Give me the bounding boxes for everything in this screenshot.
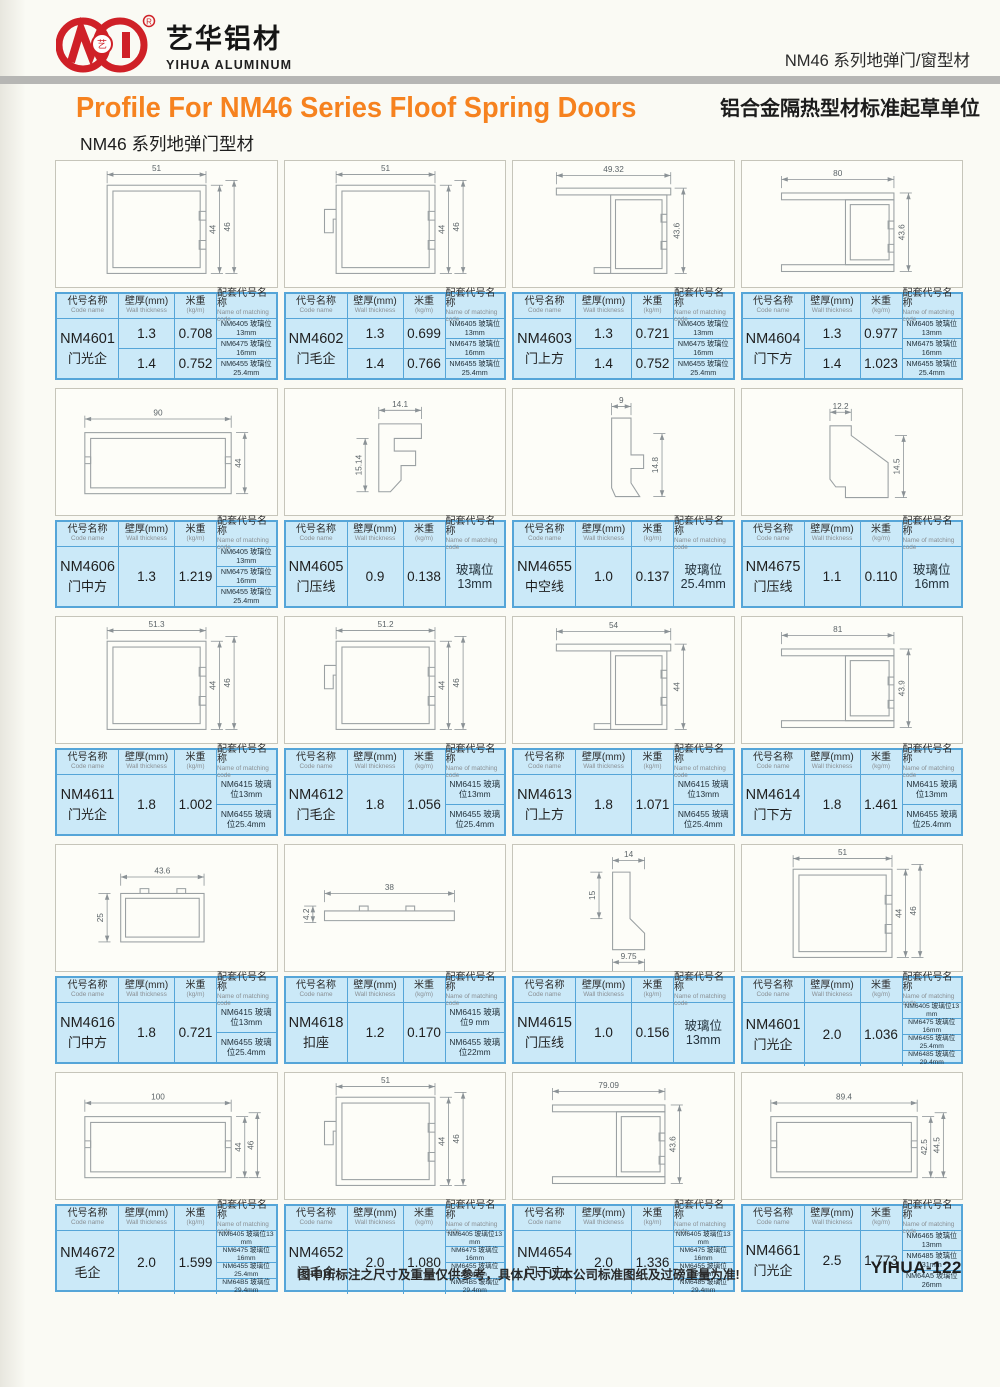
header-weight-en: (kg/m) <box>415 992 433 999</box>
header-matching-code: 配套代号名称 Name of matching code <box>674 978 733 1003</box>
matching-cell: 玻璃位13mm <box>674 1003 733 1062</box>
header-weight-en: (kg/m) <box>643 992 661 999</box>
svg-text:15: 15 <box>588 890 597 900</box>
code-cell: NM4601 门光企 <box>57 319 119 378</box>
profile-cross-section-icon: 51.34446 <box>56 617 277 743</box>
thickness-cell: 1.0 <box>576 1003 632 1062</box>
header-matching-code-cn: 配套代号名称 <box>217 517 276 538</box>
header-matching-code: 配套代号名称 Name of matching code <box>446 1206 505 1231</box>
svg-text:46: 46 <box>223 678 232 688</box>
svg-text:44: 44 <box>894 908 903 918</box>
header-weight: 米重 (kg/m) <box>175 750 217 775</box>
svg-text:46: 46 <box>452 1134 461 1144</box>
profile-cell: 514446 代号名称 Code name 壁厚(mm) Wall thickn… <box>741 844 964 1064</box>
profile-spec-table: 代号名称 Code name 壁厚(mm) Wall thickness 米重 … <box>741 748 964 836</box>
header-weight: 米重 (kg/m) <box>175 522 217 547</box>
code-cell: NM4603 门上方 <box>514 319 576 378</box>
header-matching-code: 配套代号名称 Name of matching code <box>217 1206 276 1231</box>
profile-drawing: 51.24446 <box>284 616 507 744</box>
weight-cell: 0.156 <box>632 1003 674 1062</box>
svg-text:15.14: 15.14 <box>354 454 363 475</box>
thickness-cell: 1.0 <box>576 547 632 606</box>
header-code-name: 代号名称 Code name <box>514 522 576 547</box>
wall-thickness-value: 1.2 <box>348 1003 403 1062</box>
profile-cell: 8043.6 代号名称 Code name 壁厚(mm) Wall thickn… <box>741 160 964 380</box>
header-wall-thickness: 壁厚(mm) Wall thickness <box>805 294 861 319</box>
header-weight-en: (kg/m) <box>872 764 890 771</box>
profile-cell: 914.8 代号名称 Code name 壁厚(mm) Wall thickne… <box>512 388 735 608</box>
header-matching-code: 配套代号名称 Name of matching code <box>903 294 962 319</box>
header-wall-thickness-en: Wall thickness <box>812 992 853 999</box>
matching-cell: NM6415 玻璃位9 mmNM6455 玻璃位22mm <box>446 1003 505 1062</box>
profile-drawing: 79.0943.6 <box>512 1072 735 1200</box>
code-cell: NM4655 中空线 <box>514 547 576 606</box>
matching-cell: NM6405 玻璃位13mmNM6475 玻璃位16mmNM6455 玻璃位25… <box>903 319 962 378</box>
matching-code-entry: NM6455 玻璃位25.4mm <box>903 358 962 378</box>
profile-drawing: 914.8 <box>512 388 735 516</box>
svg-text:艺: 艺 <box>97 39 107 51</box>
header-code-name-en: Code name <box>528 992 561 999</box>
profile-spec-table: 代号名称 Code name 壁厚(mm) Wall thickness 米重 … <box>741 976 964 1064</box>
code-cell: NM4614 门下方 <box>743 775 805 834</box>
profile-spec-table: 代号名称 Code name 壁厚(mm) Wall thickness 米重 … <box>741 1204 964 1292</box>
matching-code-entry: NM6415 玻璃位13mm <box>217 775 276 804</box>
svg-text:51: 51 <box>380 1076 390 1085</box>
profile-code: NM4611 <box>61 787 115 803</box>
code-cell: NM4675 门压线 <box>743 547 805 606</box>
footer-disclaimer: 图中所标注之尺寸及重量仅供参考，具体尺寸以本公司标准图纸及过磅重量为准! <box>298 1264 740 1283</box>
profile-code: NM4603 <box>517 331 572 347</box>
profile-code: NM4605 <box>289 559 344 575</box>
profile-spec-table: 代号名称 Code name 壁厚(mm) Wall thickness 米重 … <box>55 1204 278 1292</box>
header-code-name-en: Code name <box>299 1220 332 1227</box>
profile-code: NM4601 <box>746 1017 801 1033</box>
header-code-name-en: Code name <box>299 992 332 999</box>
header-code-name-en: Code name <box>756 308 789 315</box>
profile-name: 门上方 <box>525 804 564 823</box>
header-code-name: 代号名称 Code name <box>743 978 805 1003</box>
header-wall-thickness-en: Wall thickness <box>126 308 167 315</box>
svg-text:R: R <box>146 18 152 27</box>
weight-cell: 1.002 <box>175 775 217 834</box>
profile-name: 门中方 <box>68 1032 107 1051</box>
matching-code-entry: NM6475 玻璃位16mm <box>217 566 276 586</box>
header-wall-thickness-en: Wall thickness <box>355 1220 396 1227</box>
profile-code: NM4614 <box>746 787 801 803</box>
header-code-name-en: Code name <box>71 1220 104 1227</box>
header-weight-en: (kg/m) <box>415 308 433 315</box>
matching-code-entry: 玻璃位13mm <box>446 547 505 606</box>
matching-code-entry: NM6405 玻璃位13 mm <box>903 1003 962 1018</box>
matching-code-entry: NM6475 玻璃位16mm <box>217 1246 276 1262</box>
header-matching-code-cn: 配套代号名称 <box>217 1201 276 1222</box>
weight-value: 0.766 <box>404 348 445 378</box>
header-wall-thickness: 壁厚(mm) Wall thickness <box>119 522 175 547</box>
header-matching-code-cn: 配套代号名称 <box>217 973 276 994</box>
profile-cross-section-icon: 384.2 <box>285 845 506 971</box>
profile-code: NM4652 <box>289 1245 344 1261</box>
svg-text:90: 90 <box>153 409 163 418</box>
matching-code-entry: NM6455 玻璃位25.4mm <box>446 358 505 378</box>
matching-code-entry: 玻璃位16mm <box>903 547 962 606</box>
header-code-name-en: Code name <box>71 308 104 315</box>
wall-thickness-value: 0.9 <box>348 547 403 606</box>
matching-code-entry: NM6475 玻璃位16mm <box>446 1246 505 1262</box>
header-code-name: 代号名称 Code name <box>743 522 805 547</box>
profile-cell: 14159.75 代号名称 Code name 壁厚(mm) Wall thic… <box>512 844 735 1064</box>
profile-name: 扣座 <box>303 1032 329 1051</box>
thickness-cell: 2.0 <box>119 1231 175 1294</box>
weight-cell: 1.080 <box>404 1231 446 1294</box>
svg-text:43.6: 43.6 <box>669 1136 678 1152</box>
header-wall-thickness: 壁厚(mm) Wall thickness <box>348 1206 404 1231</box>
header-wall-thickness-en: Wall thickness <box>355 764 396 771</box>
profile-drawing: 384.2 <box>284 844 507 972</box>
weight-cell: 0.721 <box>175 1003 217 1062</box>
matching-code-entry: 玻璃位13mm <box>674 1003 733 1062</box>
matching-code-entry: NM6455 玻璃位25.4mm <box>217 804 276 834</box>
weight-value: 0.752 <box>175 348 216 378</box>
header-code-name: 代号名称 Code name <box>743 294 805 319</box>
header-matching-code-cn: 配套代号名称 <box>903 517 962 538</box>
header-wall-thickness-en: Wall thickness <box>355 536 396 543</box>
weight-value: 1.599 <box>175 1231 216 1294</box>
weight-value: 0.170 <box>404 1003 445 1062</box>
profile-spec-table: 代号名称 Code name 壁厚(mm) Wall thickness 米重 … <box>284 292 507 380</box>
profile-drawing: 49.3243.6 <box>512 160 735 288</box>
header-code-name-en: Code name <box>71 536 104 543</box>
profile-name: 门光企 <box>68 804 107 823</box>
profile-cell: 12.214.5 代号名称 Code name 壁厚(mm) Wall thic… <box>741 388 964 608</box>
profile-spec-table: 代号名称 Code name 壁厚(mm) Wall thickness 米重 … <box>741 292 964 380</box>
header-matching-code: 配套代号名称 Name of matching code <box>674 294 733 319</box>
profile-cross-section-icon: 43.625 <box>56 845 277 971</box>
matching-code-entry: NM6405 玻璃位13 mm <box>217 1231 276 1246</box>
profile-drawing: 8143.9 <box>741 616 964 744</box>
svg-text:44: 44 <box>209 680 218 690</box>
header-weight: 米重 (kg/m) <box>175 978 217 1003</box>
header-code-name: 代号名称 Code name <box>514 294 576 319</box>
header-matching-code: 配套代号名称 Name of matching code <box>674 1206 733 1231</box>
header-wall-thickness: 壁厚(mm) Wall thickness <box>805 522 861 547</box>
profile-name: 门下方 <box>753 348 792 367</box>
matching-code-entry: NM6455 玻璃位25.4mm <box>217 1032 276 1062</box>
matching-code-entry: NM6405 玻璃位13mm <box>674 319 733 338</box>
profile-code: NM4616 <box>60 1015 115 1031</box>
svg-text:43.6: 43.6 <box>154 867 170 876</box>
header-matching-code-cn: 配套代号名称 <box>674 973 733 994</box>
matching-code-entry: NM6455 玻璃位25.4mm <box>903 1034 962 1050</box>
header-weight: 米重 (kg/m) <box>632 750 674 775</box>
header-matching-code: 配套代号名称 Name of matching code <box>446 750 505 775</box>
header-matching-code: 配套代号名称 Name of matching code <box>217 522 276 547</box>
matching-code-entry: NM6405 玻璃位13mm <box>217 547 276 566</box>
profile-cross-section-icon: 514446 <box>285 161 506 287</box>
svg-text:100: 100 <box>151 1093 165 1102</box>
code-cell: NM4606 门中方 <box>57 547 119 606</box>
thickness-cell: 1.1 <box>805 547 861 606</box>
profile-code: NM4612 <box>289 787 344 803</box>
header-weight: 米重 (kg/m) <box>632 978 674 1003</box>
wall-thickness-value: 1.1 <box>805 547 860 606</box>
svg-text:81: 81 <box>833 625 843 634</box>
matching-code-entry: 玻璃位25.4mm <box>674 547 733 606</box>
profile-name: 门毛企 <box>296 348 335 367</box>
profile-name: 门光企 <box>68 348 107 367</box>
profile-code: NM4654 <box>517 1245 572 1261</box>
matching-code-entry: NM6405 玻璃位13 mm <box>446 1231 505 1246</box>
header-weight-en: (kg/m) <box>872 992 890 999</box>
weight-cell: 1.599 <box>175 1231 217 1294</box>
matching-code-entry: NM6455 玻璃位25.4mm <box>217 586 276 606</box>
svg-text:80: 80 <box>833 169 843 178</box>
svg-text:44: 44 <box>437 224 446 234</box>
profile-code: NM4661 <box>746 1243 801 1259</box>
matching-cell: NM6415 玻璃位13mmNM6455 玻璃位25.4mm <box>217 775 276 834</box>
svg-text:79.09: 79.09 <box>598 1081 619 1090</box>
weight-cell: 0.7080.752 <box>175 319 217 378</box>
header-wall-thickness-en: Wall thickness <box>583 536 624 543</box>
weight-value: 0.137 <box>632 547 673 606</box>
wall-thickness-value: 2.0 <box>348 1231 403 1294</box>
svg-text:51: 51 <box>380 164 390 173</box>
profile-cell: 514446 代号名称 Code name 壁厚(mm) Wall thickn… <box>284 1072 507 1292</box>
matching-code-entry: NM6485 玻璃位29.4mm <box>903 1050 962 1066</box>
header-weight: 米重 (kg/m) <box>404 1206 446 1231</box>
header-weight: 米重 (kg/m) <box>861 978 903 1003</box>
header-weight-en: (kg/m) <box>872 536 890 543</box>
wall-thickness-value: 2.5 <box>805 1231 860 1290</box>
svg-text:43.6: 43.6 <box>897 224 906 240</box>
code-cell: NM4612 门毛企 <box>286 775 348 834</box>
weight-value: 1.036 <box>861 1003 902 1066</box>
profile-code: NM4672 <box>60 1245 115 1261</box>
code-cell: NM4672 毛企 <box>57 1231 119 1294</box>
svg-text:44.5: 44.5 <box>932 1137 941 1153</box>
header-weight-en: (kg/m) <box>186 308 204 315</box>
header-matching-code-cn: 配套代号名称 <box>446 517 505 538</box>
weight-value: 1.071 <box>632 775 673 834</box>
header-wall-thickness-en: Wall thickness <box>126 536 167 543</box>
header-weight: 米重 (kg/m) <box>404 294 446 319</box>
code-cell: NM4618 扣座 <box>286 1003 348 1062</box>
matching-code-entry: NM6475 玻璃位16mm <box>217 338 276 358</box>
matching-code-entry: NM6415 玻璃位13mm <box>446 775 505 804</box>
thickness-cell: 1.2 <box>348 1003 404 1062</box>
header-wall-thickness: 壁厚(mm) Wall thickness <box>119 978 175 1003</box>
wall-thickness-value: 1.3 <box>348 319 403 348</box>
matching-cell: NM6405 玻璃位13 mmNM6475 玻璃位16mmNM6455 玻璃位2… <box>903 1003 962 1066</box>
svg-text:14.8: 14.8 <box>651 457 660 473</box>
page-title: Profile For NM46 Series Floof Spring Doo… <box>76 92 636 125</box>
header-wall-thickness: 壁厚(mm) Wall thickness <box>119 294 175 319</box>
header-code-name-en: Code name <box>299 764 332 771</box>
profile-cross-section-icon: 49.3243.6 <box>513 161 734 287</box>
profile-cell: 79.0943.6 代号名称 Code name 壁厚(mm) Wall thi… <box>512 1072 735 1292</box>
wall-thickness-value: 1.4 <box>348 348 403 378</box>
header-weight-en: (kg/m) <box>872 1220 890 1227</box>
page-subtitle: NM46 系列地弹门型材 <box>80 131 254 156</box>
header-weight: 米重 (kg/m) <box>861 1206 903 1231</box>
header-matching-code-cn: 配套代号名称 <box>446 1201 505 1222</box>
svg-text:89.4: 89.4 <box>836 1093 852 1102</box>
matching-cell: NM6405 玻璃位13 mmNM6475 玻璃位16mmNM6455 玻璃位2… <box>446 1231 505 1294</box>
profile-spec-table: 代号名称 Code name 壁厚(mm) Wall thickness 米重 … <box>55 976 278 1064</box>
profile-cell: 51.34446 代号名称 Code name 壁厚(mm) Wall thic… <box>55 616 278 836</box>
header-weight-en: (kg/m) <box>186 992 204 999</box>
profile-cross-section-icon: 8143.9 <box>742 617 963 743</box>
header-matching-code: 配套代号名称 Name of matching code <box>903 978 962 1003</box>
matching-cell: 玻璃位25.4mm <box>674 547 733 606</box>
profile-spec-table: 代号名称 Code name 壁厚(mm) Wall thickness 米重 … <box>512 976 735 1064</box>
header-wall-thickness: 壁厚(mm) Wall thickness <box>119 1206 175 1231</box>
weight-value: 0.752 <box>632 348 673 378</box>
matching-code-entry: NM6405 玻璃位13mm <box>903 319 962 338</box>
matching-cell: 玻璃位13mm <box>446 547 505 606</box>
header-matching-code-cn: 配套代号名称 <box>674 1201 733 1222</box>
matching-cell: NM6405 玻璃位13mmNM6475 玻璃位16mmNM6455 玻璃位25… <box>217 319 276 378</box>
wall-thickness-value: 1.8 <box>576 775 631 834</box>
header-wall-thickness: 壁厚(mm) Wall thickness <box>805 750 861 775</box>
header-wall-thickness-en: Wall thickness <box>126 1220 167 1227</box>
profile-name: 门压线 <box>753 576 792 595</box>
thickness-cell: 2.0 <box>348 1231 404 1294</box>
header-wall-thickness: 壁厚(mm) Wall thickness <box>576 294 632 319</box>
matching-code-entry: NM6455 玻璃位25.4mm <box>217 358 276 378</box>
header-wall-thickness-en: Wall thickness <box>812 536 853 543</box>
weight-value: 0.699 <box>404 319 445 348</box>
header-code-name: 代号名称 Code name <box>286 978 348 1003</box>
header-code-name: 代号名称 Code name <box>286 750 348 775</box>
header-matching-code-cn: 配套代号名称 <box>903 289 962 310</box>
svg-text:43.9: 43.9 <box>897 680 906 696</box>
matching-code-entry: NM6455 玻璃位25.4mm <box>217 1262 276 1278</box>
svg-text:49.32: 49.32 <box>603 165 624 174</box>
header-wall-thickness: 壁厚(mm) Wall thickness <box>348 978 404 1003</box>
header-weight-en: (kg/m) <box>186 1220 204 1227</box>
weight-value: 1.336 <box>632 1231 673 1294</box>
profile-spec-table: 代号名称 Code name 壁厚(mm) Wall thickness 米重 … <box>512 748 735 836</box>
weight-cell: 0.9771.023 <box>861 319 903 378</box>
header-matching-code-cn: 配套代号名称 <box>674 517 733 538</box>
weight-cell: 1.056 <box>404 775 446 834</box>
code-cell: NM4605 门压线 <box>286 547 348 606</box>
code-cell: NM4661 门光企 <box>743 1231 805 1290</box>
code-cell: NM4654 门下方 <box>514 1231 576 1294</box>
svg-text:46: 46 <box>452 222 461 232</box>
weight-cell: 1.071 <box>632 775 674 834</box>
header-wall-thickness: 壁厚(mm) Wall thickness <box>348 522 404 547</box>
header-code-name: 代号名称 Code name <box>743 1206 805 1231</box>
profile-spec-table: 代号名称 Code name 壁厚(mm) Wall thickness 米重 … <box>512 520 735 608</box>
profile-spec-table: 代号名称 Code name 壁厚(mm) Wall thickness 米重 … <box>741 520 964 608</box>
profile-cell: 514446 代号名称 Code name 壁厚(mm) Wall thickn… <box>284 160 507 380</box>
profile-cross-section-icon: 51.24446 <box>285 617 506 743</box>
header-matching-code-cn: 配套代号名称 <box>903 745 962 766</box>
svg-text:14: 14 <box>624 850 634 859</box>
header-weight-en: (kg/m) <box>415 536 433 543</box>
wall-thickness-value: 1.8 <box>119 1003 174 1062</box>
profile-cell: 49.3243.6 代号名称 Code name 壁厚(mm) Wall thi… <box>512 160 735 380</box>
wall-thickness-value: 1.4 <box>805 348 860 378</box>
header-code-name-en: Code name <box>528 1220 561 1227</box>
profile-drawing: 12.214.5 <box>741 388 964 516</box>
profile-name: 门中方 <box>68 576 107 595</box>
weight-value: 0.138 <box>404 547 445 606</box>
header-code-name: 代号名称 Code name <box>57 522 119 547</box>
header-matching-code: 配套代号名称 Name of matching code <box>446 522 505 547</box>
profile-code: NM4675 <box>746 559 801 575</box>
header-wall-thickness: 壁厚(mm) Wall thickness <box>576 750 632 775</box>
code-cell: NM4602 门毛企 <box>286 319 348 378</box>
header-code-name-en: Code name <box>528 536 561 543</box>
header-wall-thickness: 壁厚(mm) Wall thickness <box>348 750 404 775</box>
header-wall-thickness: 壁厚(mm) Wall thickness <box>119 750 175 775</box>
matching-code-entry: NM6455 玻璃位25.4mm <box>446 804 505 834</box>
profile-cross-section-icon: 79.0943.6 <box>513 1073 734 1199</box>
weight-value: 1.056 <box>404 775 445 834</box>
code-cell: NM4613 门上方 <box>514 775 576 834</box>
wall-thickness-value: 1.0 <box>576 1003 631 1062</box>
header-matching-code: 配套代号名称 Name of matching code <box>217 750 276 775</box>
matching-cell: NM6405 玻璃位13mmNM6475 玻璃位16mmNM6455 玻璃位25… <box>446 319 505 378</box>
header-wall-thickness-en: Wall thickness <box>583 992 624 999</box>
profile-drawing: 514446 <box>55 160 278 288</box>
weight-value: 0.977 <box>861 319 902 348</box>
header-matching-code: 配套代号名称 Name of matching code <box>903 750 962 775</box>
thickness-cell: 1.8 <box>119 1003 175 1062</box>
profile-name: 门光企 <box>753 1260 792 1279</box>
header-wall-thickness-en: Wall thickness <box>126 992 167 999</box>
header-code-name: 代号名称 Code name <box>286 1206 348 1231</box>
matching-code-entry: NM6415 玻璃位13mm <box>217 1003 276 1032</box>
matching-code-entry: NM6405 玻璃位13mm <box>446 319 505 338</box>
header-weight-en: (kg/m) <box>415 764 433 771</box>
thickness-cell: 1.31.4 <box>805 319 861 378</box>
svg-text:38: 38 <box>384 883 394 892</box>
profile-name: 毛企 <box>74 1262 100 1281</box>
yihua-logo-icon: 艺 R <box>56 12 156 76</box>
header-code-name: 代号名称 Code name <box>514 978 576 1003</box>
weight-value: 1.023 <box>861 348 902 378</box>
header-wall-thickness: 壁厚(mm) Wall thickness <box>348 294 404 319</box>
profile-name: 门光企 <box>753 1034 792 1053</box>
thickness-cell: 2.5 <box>805 1231 861 1290</box>
wall-thickness-value: 1.3 <box>805 319 860 348</box>
header-wall-thickness: 壁厚(mm) Wall thickness <box>576 978 632 1003</box>
profile-code: NM4615 <box>517 1015 572 1031</box>
profile-cross-section-icon: 89.442.544.5 <box>742 1073 963 1199</box>
header-matching-code-cn: 配套代号名称 <box>446 973 505 994</box>
thickness-cell: 2.0 <box>576 1231 632 1294</box>
profile-cell: 9044 代号名称 Code name 壁厚(mm) Wall thicknes… <box>55 388 278 608</box>
code-cell: NM4615 门压线 <box>514 1003 576 1062</box>
matching-code-entry: NM64B5 玻璃位29.4mm <box>217 1278 276 1294</box>
header-wall-thickness-en: Wall thickness <box>812 1220 853 1227</box>
header-wall-thickness-en: Wall thickness <box>355 992 396 999</box>
svg-text:44: 44 <box>234 458 243 468</box>
profile-cross-section-icon: 1004446 <box>56 1073 277 1199</box>
weight-value: 1.080 <box>404 1231 445 1294</box>
svg-text:12.2: 12.2 <box>832 402 848 411</box>
header-code-name: 代号名称 Code name <box>514 750 576 775</box>
profile-cell: 1004446 代号名称 Code name 壁厚(mm) Wall thick… <box>55 1072 278 1292</box>
header-matching-code-cn: 配套代号名称 <box>903 973 962 994</box>
svg-text:44: 44 <box>437 680 446 690</box>
header-wall-thickness: 壁厚(mm) Wall thickness <box>805 978 861 1003</box>
wall-thickness-value: 2.0 <box>805 1003 860 1066</box>
header-matching-code: 配套代号名称 Name of matching code <box>217 294 276 319</box>
